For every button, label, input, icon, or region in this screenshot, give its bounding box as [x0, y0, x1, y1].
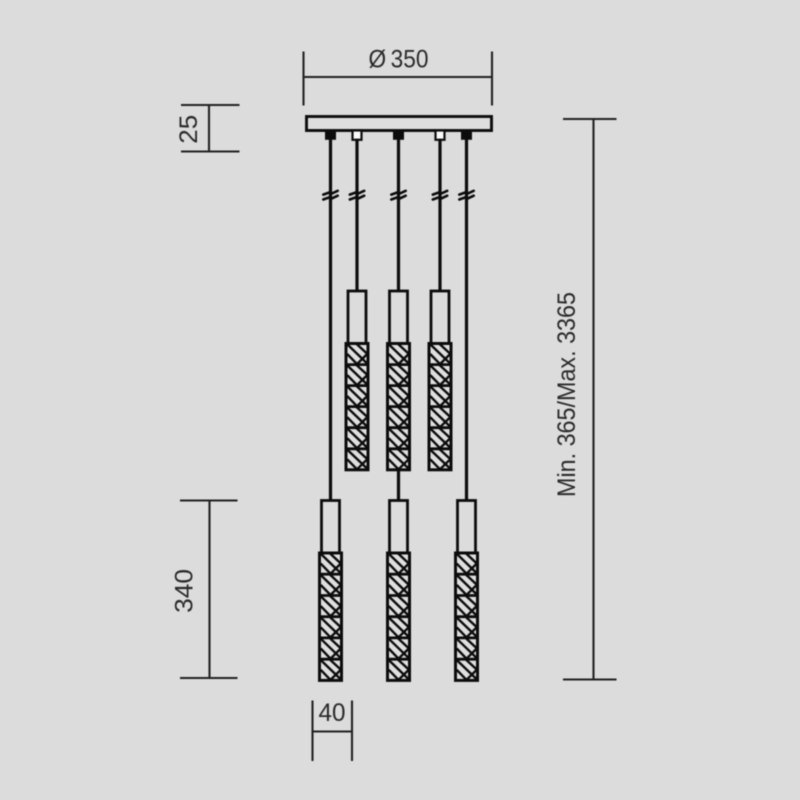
svg-text:25: 25	[175, 115, 203, 144]
svg-text:340: 340	[171, 569, 199, 613]
svg-text:Min. 365/Max. 3365: Min. 365/Max. 3365	[553, 292, 581, 497]
svg-text:40: 40	[319, 699, 346, 727]
svg-text:Ø 350: Ø 350	[369, 46, 429, 74]
